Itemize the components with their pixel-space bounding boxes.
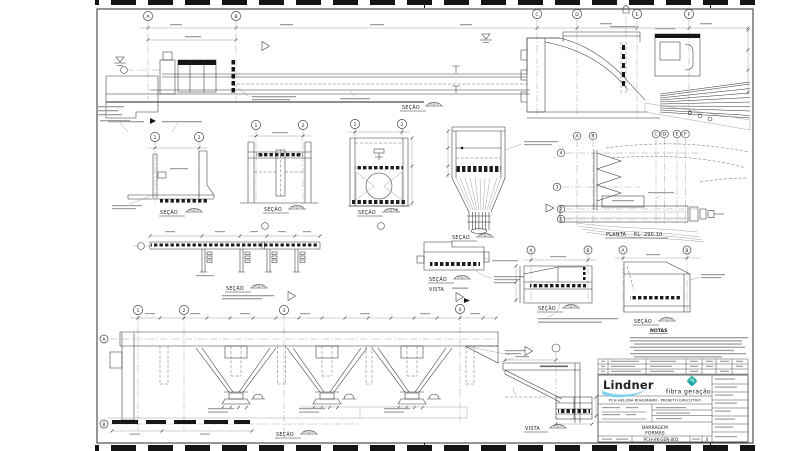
adjacent-sheet-strip-bottom xyxy=(95,443,755,451)
section-label: SEÇÃO xyxy=(226,285,244,292)
svg-text:1: 1 xyxy=(154,135,157,141)
svg-text:D: D xyxy=(663,132,667,138)
section-label: SEÇÃO xyxy=(402,104,420,111)
project-title: PCH HELENA KUHLMANN - PROJETO EXECUTIVO xyxy=(609,398,702,403)
adjacent-sheet-strip-top xyxy=(95,0,755,8)
grid-bubble-4: 4 xyxy=(455,304,464,313)
grid-bubble-4: 4 xyxy=(557,149,565,157)
svg-text:1: 1 xyxy=(137,308,140,314)
notes-title: NOTAS xyxy=(650,328,667,334)
svg-text:D: D xyxy=(575,12,579,18)
svg-text:2: 2 xyxy=(198,135,201,141)
revision-number: 0 xyxy=(706,437,709,442)
grid-bubble-a: A xyxy=(527,246,535,254)
grid-bubble-1: 1 xyxy=(133,305,142,314)
svg-text:C: C xyxy=(535,12,538,18)
section-letter: F xyxy=(396,207,398,212)
section-label: SEÇÃO xyxy=(538,305,556,312)
section-label: SEÇÃO xyxy=(264,206,282,213)
svg-text:E: E xyxy=(636,12,639,18)
grid-bubble-b: B xyxy=(231,11,240,20)
svg-text:B: B xyxy=(234,14,237,20)
grid-bubble-3: 3 xyxy=(553,183,561,191)
grid-bubble-1: 1 xyxy=(251,120,260,129)
grid-bubble-c: C xyxy=(532,9,541,18)
svg-text:2: 2 xyxy=(401,122,404,128)
vista-label: VISTA xyxy=(525,426,540,432)
planta-elevation: EL. 290.10 xyxy=(634,232,663,238)
grid-bubble-f: F xyxy=(684,9,693,18)
section-label: SEÇÃO xyxy=(634,318,652,325)
grid-bubble-b: B xyxy=(100,420,108,428)
svg-text:B: B xyxy=(102,422,105,428)
grid-bubble-b: B xyxy=(683,246,691,254)
grid-bubble-2: 2 xyxy=(397,119,406,128)
grid-bubble-2: 2 xyxy=(298,120,307,129)
grid-bubble-c: C xyxy=(652,130,660,138)
grid-bubble-d: D xyxy=(661,130,669,138)
svg-text:2: 2 xyxy=(183,308,186,314)
section-label: SEÇÃO xyxy=(429,276,447,283)
vista-label: VISTA xyxy=(429,287,444,293)
planta-label: PLANTA xyxy=(606,232,627,238)
grid-bubble-d: D xyxy=(572,9,581,18)
svg-text:3: 3 xyxy=(556,185,559,191)
grid-bubble-1: 1 xyxy=(557,215,565,223)
svg-text:1: 1 xyxy=(354,122,357,128)
drawing-sheet-svg: A B SEÇÃO C D xyxy=(0,0,800,451)
drawing-title-line1: BARRAGEM xyxy=(642,425,668,431)
grid-bubble-2: 2 xyxy=(179,305,188,314)
grid-bubble-2: 2 xyxy=(194,132,203,141)
grid-bubble-a: A xyxy=(143,11,152,20)
drawing-number: PCH-HK-GEN-001 xyxy=(644,437,679,442)
svg-text:F: F xyxy=(688,12,691,18)
grid-bubble-f: F xyxy=(682,130,690,138)
grid-bubble-b: B xyxy=(589,132,597,140)
section-label: SEÇÃO xyxy=(276,431,294,438)
drawing-title-line2: FORMAS xyxy=(645,431,665,437)
grid-bubble-2: 2 xyxy=(557,205,565,213)
grid-bubble-1: 1 xyxy=(150,132,159,141)
svg-text:C: C xyxy=(654,132,657,138)
svg-text:4: 4 xyxy=(459,307,462,313)
svg-text:F: F xyxy=(684,132,687,138)
section-label: SEÇÃO xyxy=(160,209,178,216)
grid-bubble-e: E xyxy=(632,9,641,18)
title-block: Lindner fibra geração PCH HELENA KUHLMAN… xyxy=(598,375,748,442)
grid-bubble-a: A xyxy=(573,132,581,140)
fibra-wordmark: fibra geração xyxy=(666,389,711,396)
grid-bubble-b: B xyxy=(584,246,592,254)
grid-bubble-a: A xyxy=(100,335,108,343)
svg-text:B: B xyxy=(685,248,688,254)
section-label: SEÇÃO xyxy=(358,209,376,216)
grid-bubble-e: E xyxy=(673,130,681,138)
svg-text:B: B xyxy=(591,134,594,140)
svg-text:1: 1 xyxy=(255,123,258,129)
svg-text:2: 2 xyxy=(302,123,305,129)
grid-bubble-a: A xyxy=(619,246,627,254)
grid-bubble-1: 1 xyxy=(350,119,359,128)
svg-text:4: 4 xyxy=(560,151,563,157)
svg-text:3: 3 xyxy=(283,308,286,314)
svg-text:E: E xyxy=(676,132,679,138)
drawing-page: A B SEÇÃO C D xyxy=(0,0,800,451)
lindner-wordmark: Lindner xyxy=(603,378,654,392)
section-label: SEÇÃO xyxy=(452,234,470,241)
svg-text:B: B xyxy=(586,248,589,254)
grid-bubble-3: 3 xyxy=(279,305,288,314)
